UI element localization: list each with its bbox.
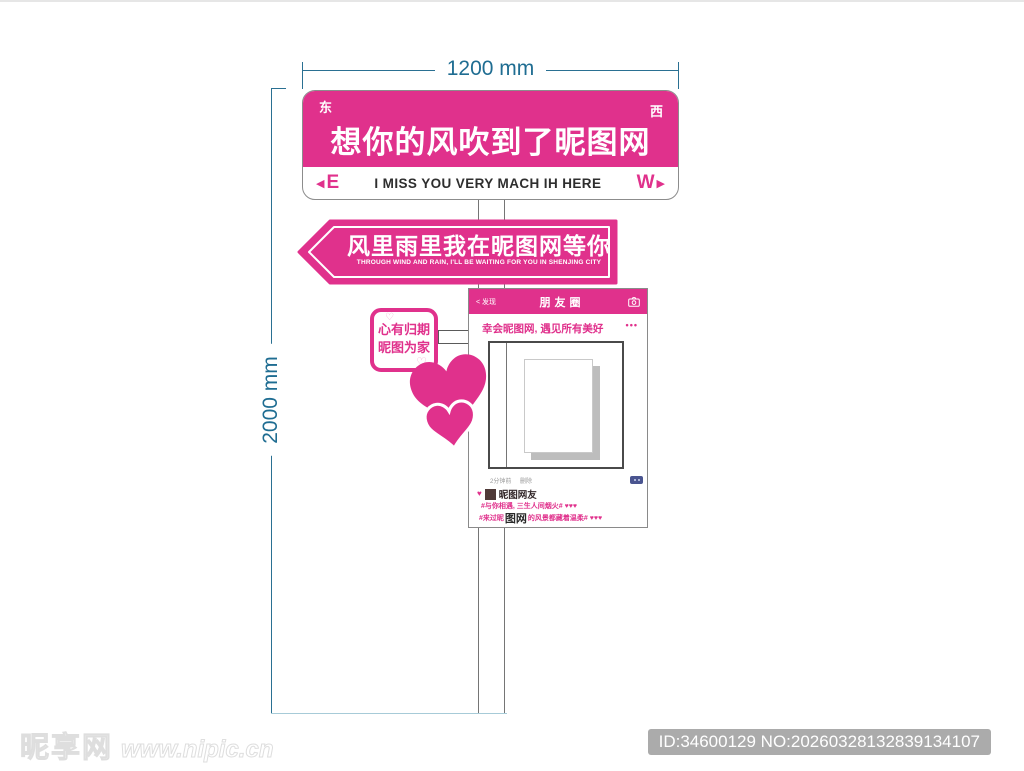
height-dimension-label: 2000 mm bbox=[259, 344, 283, 456]
timestamp: 2分钟前 bbox=[490, 479, 511, 485]
moments-meta: 2分钟前 删除 bbox=[490, 476, 532, 485]
moments-caption-row: 幸会昵图网, 遇见所有美好 ••• bbox=[469, 314, 647, 336]
moments-caption: 幸会昵图网, 遇见所有美好 bbox=[482, 321, 603, 336]
pole-through-cutout bbox=[506, 343, 507, 467]
arrow-sign-subtitle: THROUGH WIND AND RAIN, I'LL BE WAITING F… bbox=[342, 259, 616, 266]
avatar bbox=[485, 489, 496, 500]
main-sign-title: 想你的风吹到了昵图网 bbox=[303, 117, 678, 162]
width-dimension-label: 1200 mm bbox=[302, 57, 679, 81]
main-sign-band: ◀E I MISS YOU VERY MACH IH HERE W▶ bbox=[303, 167, 678, 199]
comment2-prefix: #来过昵 bbox=[479, 513, 504, 523]
more-dots-icon: ••• bbox=[626, 321, 638, 330]
username: 昵图网友 bbox=[499, 487, 537, 501]
back-button: < 发现 bbox=[476, 297, 496, 307]
heart-icon: ♥ bbox=[477, 490, 482, 498]
moments-user-row: ♥ 昵图网友 bbox=[477, 487, 537, 501]
east-letter: E bbox=[326, 172, 339, 194]
arrow-sign-title: 风里雨里我在昵图网等你 bbox=[342, 227, 616, 261]
canvas-top-border bbox=[0, 0, 1024, 2]
watermark-url: www.nipic.cn bbox=[121, 736, 273, 764]
main-sign-english-text: I MISS YOU VERY MACH IH HERE bbox=[374, 176, 601, 191]
heart-outline-icon: ♡ bbox=[385, 312, 394, 323]
west-direction-marker: W▶ bbox=[637, 172, 665, 194]
ground-baseline bbox=[271, 713, 507, 714]
comment2-bold: 图网 bbox=[505, 510, 527, 526]
main-sign-pink-panel: 东 西 想你的风吹到了昵图网 bbox=[303, 91, 678, 167]
signpost-design-canvas: 1200 mm 2000 mm 东 西 想你的风吹到了昵图网 ◀E I MISS… bbox=[0, 0, 1024, 771]
right-arrow-icon: ▶ bbox=[657, 177, 665, 190]
arrow-direction-sign: 风里雨里我在昵图网等你 THROUGH WIND AND RAIN, I'LL … bbox=[296, 218, 622, 286]
comment-like-button-icon bbox=[630, 476, 643, 484]
site-watermark: 昵享网 www.nipic.cn bbox=[20, 724, 273, 766]
camera-icon bbox=[628, 297, 640, 307]
east-direction-marker: ◀E bbox=[316, 172, 339, 194]
moments-title: 朋友圈 bbox=[496, 294, 628, 310]
moments-header: < 发现 朋友圈 bbox=[469, 289, 647, 314]
comment2-suffix: 的风景都藏着温柔# ♥♥♥ bbox=[528, 513, 602, 523]
moments-comment-2: #来过昵 图网 的风景都藏着温柔# ♥♥♥ bbox=[479, 510, 602, 526]
square-sign-line1: 心有归期 bbox=[374, 321, 434, 339]
left-arrow-icon: ◀ bbox=[316, 177, 324, 190]
main-sign-board: 东 西 想你的风吹到了昵图网 ◀E I MISS YOU VERY MACH I… bbox=[302, 90, 679, 200]
east-corner-label: 东 bbox=[319, 97, 332, 116]
west-letter: W bbox=[637, 172, 655, 194]
watermark-logo: 昵享网 bbox=[20, 724, 113, 766]
height-dimension-tick-top bbox=[271, 88, 286, 89]
decor-hearts-icon bbox=[405, 350, 505, 458]
image-id-badge: ID:34600129 NO:20260328132839134107 bbox=[648, 729, 991, 755]
delete-label: 删除 bbox=[520, 479, 532, 485]
photo-placeholder bbox=[524, 359, 593, 453]
